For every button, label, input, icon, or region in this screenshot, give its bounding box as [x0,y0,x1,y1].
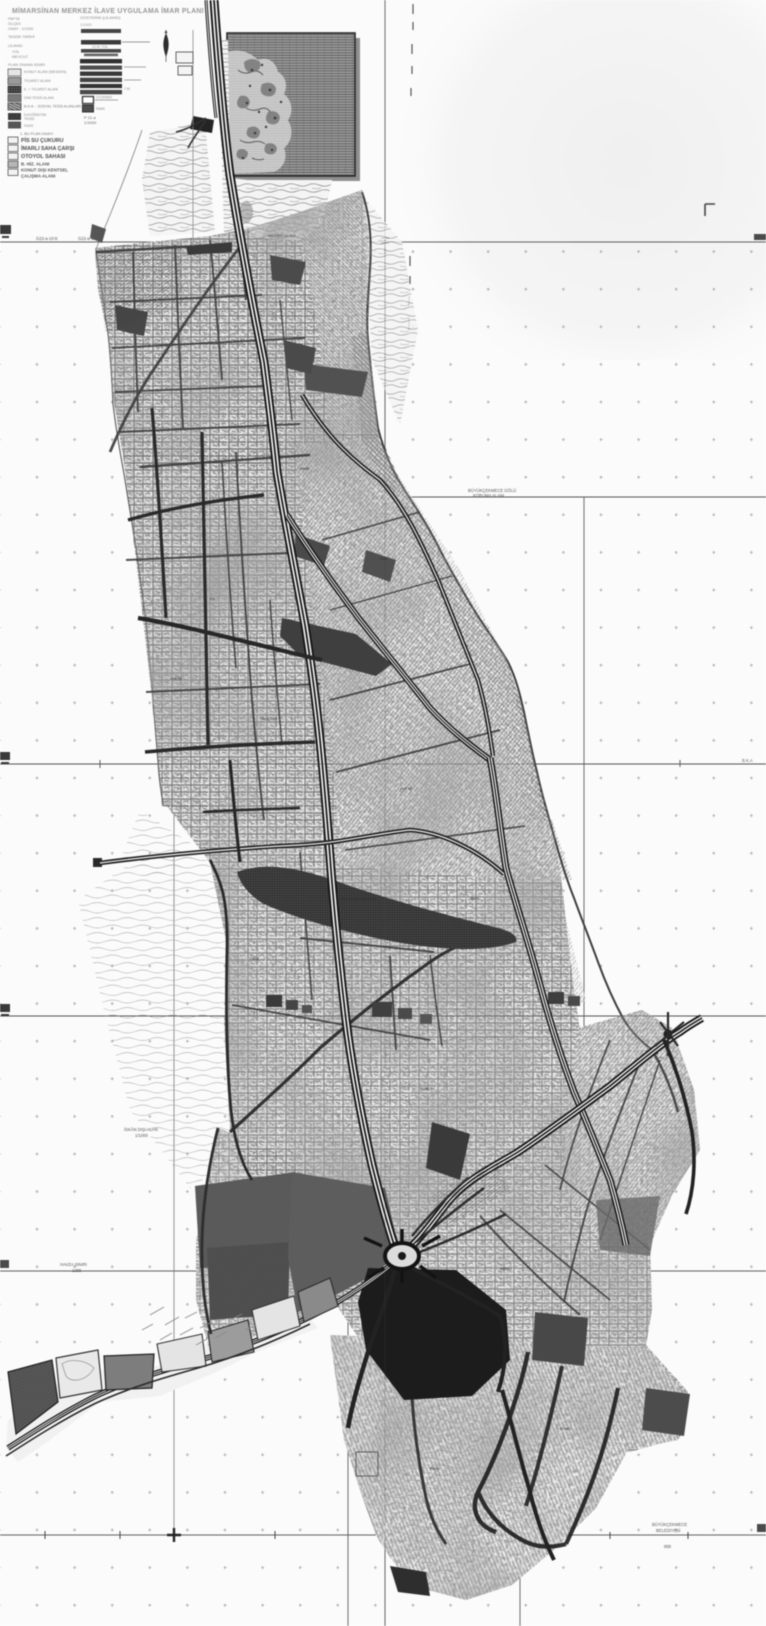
svg-text:DİNİ TESİS ALANI: DİNİ TESİS ALANI [24,95,54,100]
svg-text:OTOPARK: OTOPARK [96,96,113,100]
svg-text:ÇALIŞMA ALANI: ÇALIŞMA ALANI [21,174,55,179]
svg-text:TESİS: TESİS [24,116,35,121]
svg-text:H=9.50: H=9.50 [400,787,412,791]
svg-text:7 M.: 7 M. [124,87,131,91]
svg-text:G22-a-10-b: G22-a-10-b [36,236,58,241]
svg-text:DİNİ: DİNİ [380,556,387,561]
svg-text:ONAY : 1/1000: ONAY : 1/1000 [8,27,33,31]
svg-text:1. BU PLAN ONAYI: 1. BU PLAN ONAYI [20,132,53,136]
svg-text:1/1000: 1/1000 [84,120,97,125]
svg-text:PARK: PARK [24,124,34,128]
svg-text:PARK: PARK [500,1267,510,1271]
svg-text:YOL: YOL [12,50,20,54]
svg-text:H=6.50: H=6.50 [170,677,182,681]
svg-text:K3: K3 [210,597,214,601]
svg-text:KONUT: KONUT [560,1427,573,1431]
svg-text:PARK: PARK [300,467,310,471]
svg-text:MİMARSİNAN MERKEZ İLAVE UYGULA: MİMARSİNAN MERKEZ İLAVE UYGULAMA İMAR PL… [12,6,204,15]
svg-text:ÖLÇEK: ÖLÇEK [8,22,21,26]
svg-text:1285: 1285 [72,1268,82,1273]
svg-text:PİS SU ÇUKURU: PİS SU ÇUKURU [21,137,64,144]
svg-text:LEJAND: LEJAND [8,44,23,48]
svg-text:858: 858 [664,1544,672,1549]
svg-text:B.K.A: B.K.A [742,758,753,763]
svg-text:PARK: PARK [96,107,106,111]
svg-text:İMARLI SAHA ÇARŞI: İMARLI SAHA ÇARŞI [21,145,75,152]
svg-text:K. + TİCARET ALANI: K. + TİCARET ALANI [24,87,58,92]
svg-text:AĞAÇLANDIRILACAK: AĞAÇLANDIRILACAK [340,896,377,901]
svg-text:TAKS 0.25: TAKS 0.25 [260,717,277,721]
svg-text:1/1000: 1/1000 [135,1133,148,1138]
svg-text:HAVZA SINIRI: HAVZA SINIRI [60,1262,87,1267]
svg-text:KONUT DIŞI KENTSEL: KONUT DIŞI KENTSEL [21,168,68,173]
svg-text:B.H.A. - SOSYAL TESİS ALANLARI: B.H.A. - SOSYAL TESİS ALANLARI [24,104,81,109]
svg-text:BÜYÜKÇEKMECE: BÜYÜKÇEKMECE [652,1522,687,1527]
svg-text:PLAN ONAMA SINIRI: PLAN ONAMA SINIRI [8,63,45,67]
svg-text:PARK: PARK [430,1467,440,1471]
svg-text:K2: K2 [160,517,164,521]
svg-text:BELEDİYESİ: BELEDİYESİ [656,1528,680,1533]
svg-text:OTOYOL SAHASI: OTOYOL SAHASI [21,154,66,160]
svg-text:MESİRE ALANI: MESİRE ALANI [268,233,296,238]
svg-text:TAKS: TAKS [470,897,480,901]
svg-text:TİCARET ALANI: TİCARET ALANI [24,78,51,83]
svg-text:PAFTA: PAFTA [8,17,20,21]
svg-text:KONUT: KONUT [420,1087,433,1091]
svg-text:12 M. YOL: 12 M. YOL [92,45,108,49]
svg-text:1/1000: 1/1000 [80,23,92,27]
svg-text:GÖSTERİM (LEJAND): GÖSTERİM (LEJAND) [80,15,121,20]
svg-text:OKUL: OKUL [250,957,260,961]
svg-text:B. HİZ. ALANI: B. HİZ. ALANI [21,162,49,167]
svg-text:TASDİK TARİHİ: TASDİK TARİHİ [8,34,35,39]
svg-text:KONUT ALANI (MESKEN): KONUT ALANI (MESKEN) [24,70,66,74]
svg-text:MEVCUT: MEVCUT [12,55,29,59]
